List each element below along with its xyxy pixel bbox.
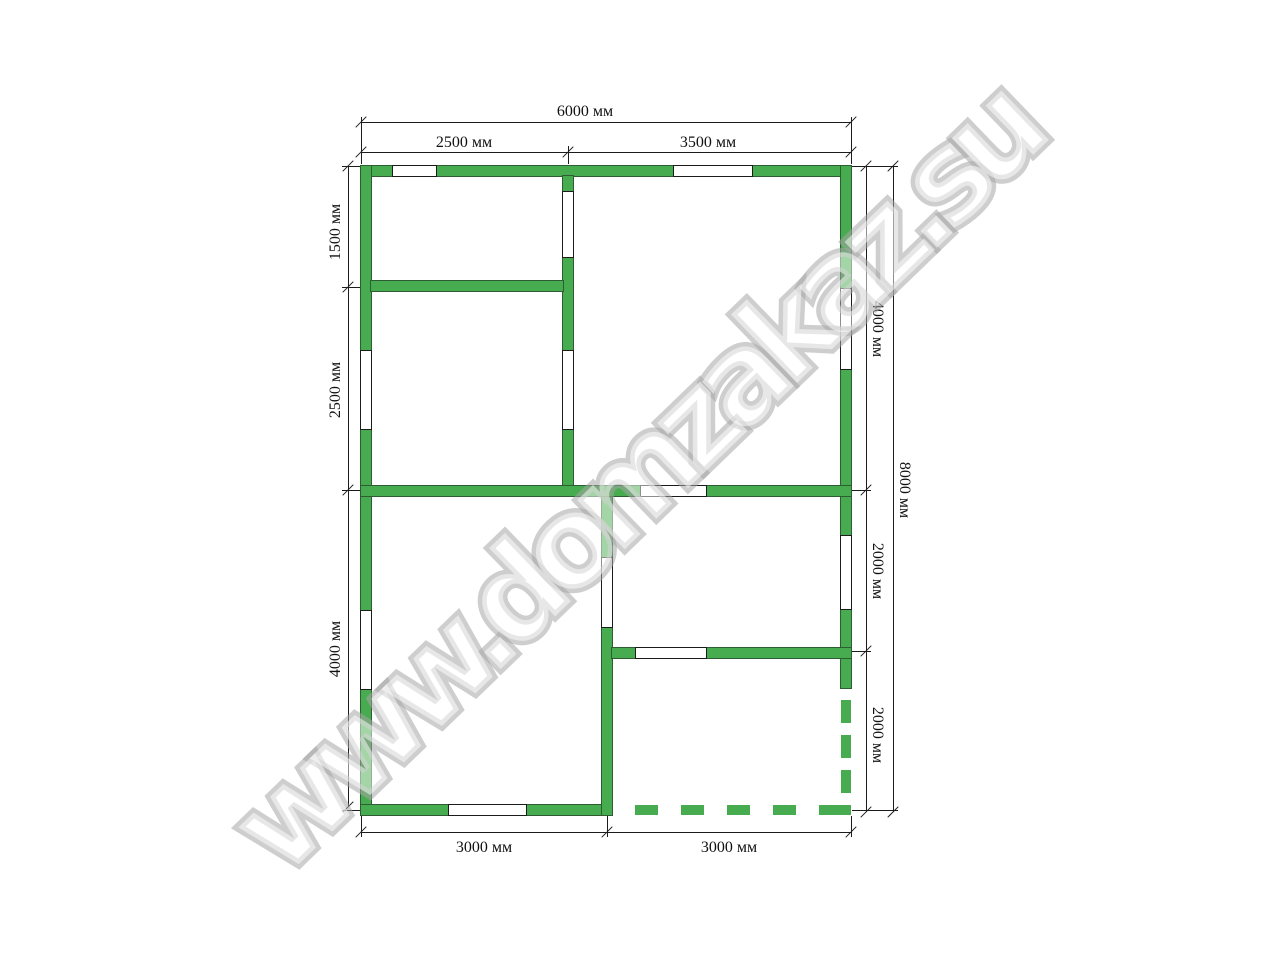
dim-label-height-total: 8000 мм: [895, 462, 913, 518]
dim-label-height-left-top: 1500 мм: [327, 204, 345, 260]
door-interior-upper-2: [562, 350, 574, 430]
ext-line: [361, 816, 362, 837]
wall-dashed-bottom: [612, 805, 851, 815]
dim-label-bottom-left: 3000 мм: [456, 839, 512, 857]
ext-line: [851, 816, 852, 837]
wall-interior-horizontal-middle: [361, 486, 851, 496]
wall-dashed-corner: [841, 805, 851, 815]
dim-line-right-outer: [893, 166, 894, 812]
ext-line: [852, 810, 898, 811]
watermark-layer: www.domzakaz.su: [0, 0, 1280, 960]
wall-interior-vertical-lower: [602, 486, 612, 815]
dim-label-height-right-top: 4000 мм: [868, 301, 886, 357]
window-left-lower: [360, 610, 372, 690]
window-bottom: [448, 804, 527, 816]
dim-label-width-right: 3500 мм: [680, 134, 736, 152]
dim-label-height-left-bottom: 4000 мм: [327, 621, 345, 677]
ext-line: [852, 490, 871, 491]
dim-line-top-overall: [361, 122, 851, 123]
ext-line: [851, 117, 852, 164]
window-right-lower: [840, 535, 852, 610]
dim-label-height-right-mid: 2000 мм: [868, 543, 886, 599]
wall-dashed-right: [841, 688, 851, 805]
window-middle-wall: [640, 485, 707, 497]
window-top-left: [392, 165, 437, 177]
dim-label-width-total: 6000 мм: [557, 103, 613, 121]
wall-interior-horizontal-upper: [371, 281, 563, 291]
watermark-text: www.domzakaz.su: [203, 57, 1070, 902]
dim-label-height-left-mid: 2500 мм: [327, 362, 345, 418]
dim-label-height-right-bottom: 2000 мм: [868, 707, 886, 763]
ext-line: [607, 816, 608, 837]
door-interior-lower: [601, 557, 613, 628]
ext-line: [361, 117, 362, 164]
dim-label-width-left: 2500 мм: [436, 134, 492, 152]
dim-line-top-sections: [361, 152, 851, 153]
window-right-upper: [840, 288, 852, 370]
floor-plan-canvas: 6000 мм 2500 мм 3500 мм 1500 мм 2500 мм …: [0, 0, 1280, 960]
ext-line: [852, 651, 871, 652]
window-left-upper: [360, 350, 372, 430]
dim-label-bottom-right: 3000 мм: [701, 839, 757, 857]
door-interior-upper-1: [562, 191, 574, 258]
window-top-right: [673, 165, 753, 177]
window-divider-wall: [635, 647, 707, 659]
